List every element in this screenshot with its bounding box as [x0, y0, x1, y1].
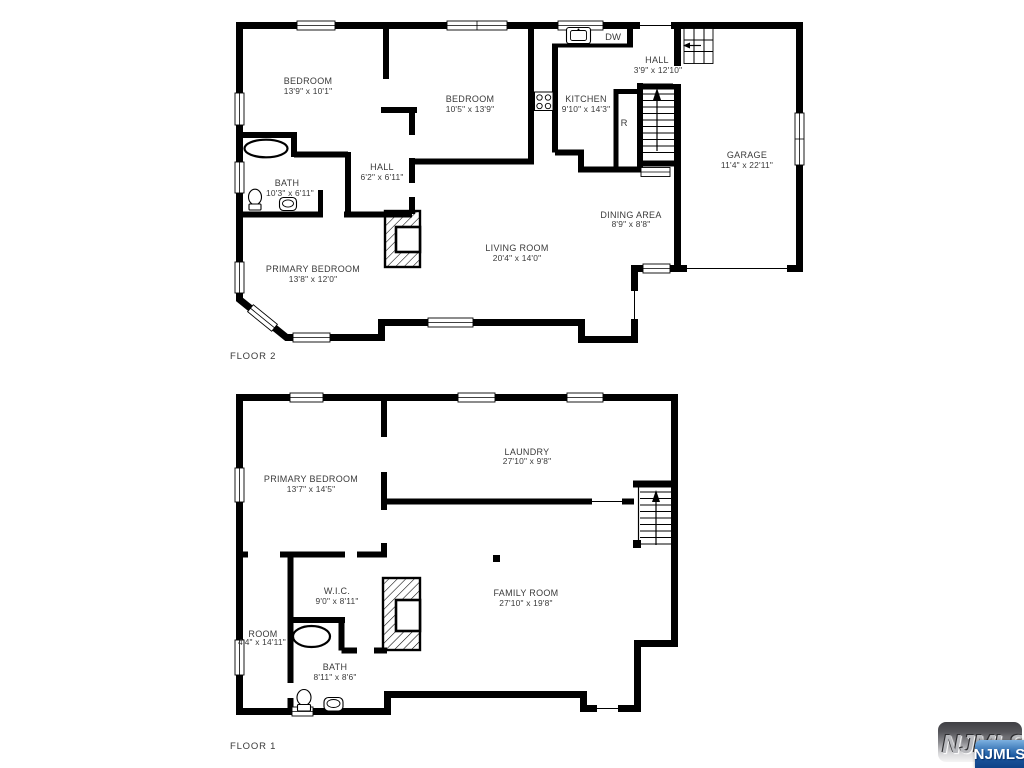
room-label: PRIMARY BEDROOM	[264, 474, 358, 484]
bathtub-icon	[245, 140, 288, 158]
window	[290, 393, 323, 402]
room-label: BATH	[275, 178, 300, 188]
staircase-up-icon	[633, 488, 674, 549]
window	[795, 113, 804, 165]
window	[447, 21, 507, 30]
window	[297, 21, 335, 30]
bathtub-icon	[293, 626, 330, 647]
fireplace-icon	[385, 211, 420, 267]
floor1-title: FLOOR 1	[230, 741, 276, 752]
room-dims: 20'4" x 14'0"	[493, 253, 542, 263]
njmls-badge-text: NJMLS	[974, 746, 1024, 763]
room-dims: 10'3" x 6'11"	[266, 188, 314, 198]
floor2-walls	[236, 22, 800, 340]
room-dims: 13'7" x 14'5"	[287, 484, 336, 494]
toilet-icon	[249, 189, 262, 210]
window	[235, 162, 244, 193]
room-dims: 6'2" x 6'11"	[360, 172, 403, 182]
support-column	[493, 555, 500, 562]
floor2-labels: BEDROOM 13'9" x 10'1" BEDROOM 10'5" x 13…	[230, 32, 773, 362]
window	[293, 333, 330, 342]
floor2-plan: BEDROOM 13'9" x 10'1" BEDROOM 10'5" x 13…	[230, 20, 804, 362]
kitchen-sink-icon	[567, 28, 591, 44]
room-label: BATH	[323, 662, 348, 672]
fireplace-icon	[383, 578, 420, 650]
floor2-windows	[235, 21, 804, 342]
window	[248, 305, 278, 332]
dishwasher-label: DW	[605, 32, 621, 43]
room-label: PRIMARY BEDROOM	[266, 264, 360, 274]
room-dims: 11'4" x 22'11"	[721, 160, 773, 170]
room-dims: 13'8" x 12'0"	[289, 274, 338, 284]
window	[235, 93, 244, 125]
window	[643, 264, 670, 273]
window	[567, 393, 603, 402]
room-label: LIVING ROOM	[485, 243, 548, 253]
sink-icon	[324, 698, 343, 712]
floor2-title: FLOOR 2	[230, 351, 276, 362]
floorplan-page: BEDROOM 13'9" x 10'1" BEDROOM 10'5" x 13…	[0, 0, 1024, 768]
staircase-up-icon	[643, 88, 675, 153]
floor1-plan: PRIMARY BEDROOM 13'7" x 14'5" LAUNDRY 27…	[230, 393, 678, 752]
room-dims: 9'10" x 14'3"	[562, 104, 611, 114]
room-label: HALL	[370, 162, 394, 172]
room-dims: 27'10" x 9'8"	[503, 456, 552, 466]
njmls-badge: NJMLS	[975, 740, 1024, 768]
staircase-down-icon	[683, 29, 713, 64]
floor1-walls	[239, 397, 678, 712]
room-dims: 4'4" x 14'11"	[238, 637, 286, 647]
window	[458, 393, 495, 402]
room-dims: 3'9" x 12'10"	[634, 65, 683, 75]
refrigerator-label: R	[621, 118, 628, 129]
stove-icon	[535, 92, 554, 111]
window	[235, 262, 244, 293]
toilet-icon	[297, 690, 311, 712]
room-dims: 27'10" x 19'8"	[499, 598, 552, 608]
window	[428, 318, 473, 327]
room-dims: 13'9" x 10'1"	[284, 86, 333, 96]
room-dims: 9'0" x 8'11"	[315, 596, 358, 606]
room-label: HALL	[645, 55, 669, 65]
room-dims: 8'11" x 8'6"	[313, 672, 356, 682]
vestibule-door	[641, 168, 670, 177]
window	[235, 468, 244, 502]
room-label: GARAGE	[727, 150, 767, 160]
floorplan-drawing: BEDROOM 13'9" x 10'1" BEDROOM 10'5" x 13…	[0, 0, 1024, 768]
room-label: FAMILY ROOM	[494, 588, 559, 598]
room-dims: 10'5" x 13'9"	[446, 104, 495, 114]
sink-icon	[280, 198, 297, 211]
room-label: BEDROOM	[446, 94, 495, 104]
room-dims: 8'9" x 8'8"	[612, 219, 651, 229]
room-label: W.I.C.	[324, 586, 350, 596]
room-label: KITCHEN	[565, 94, 607, 104]
room-label: BEDROOM	[284, 76, 333, 86]
